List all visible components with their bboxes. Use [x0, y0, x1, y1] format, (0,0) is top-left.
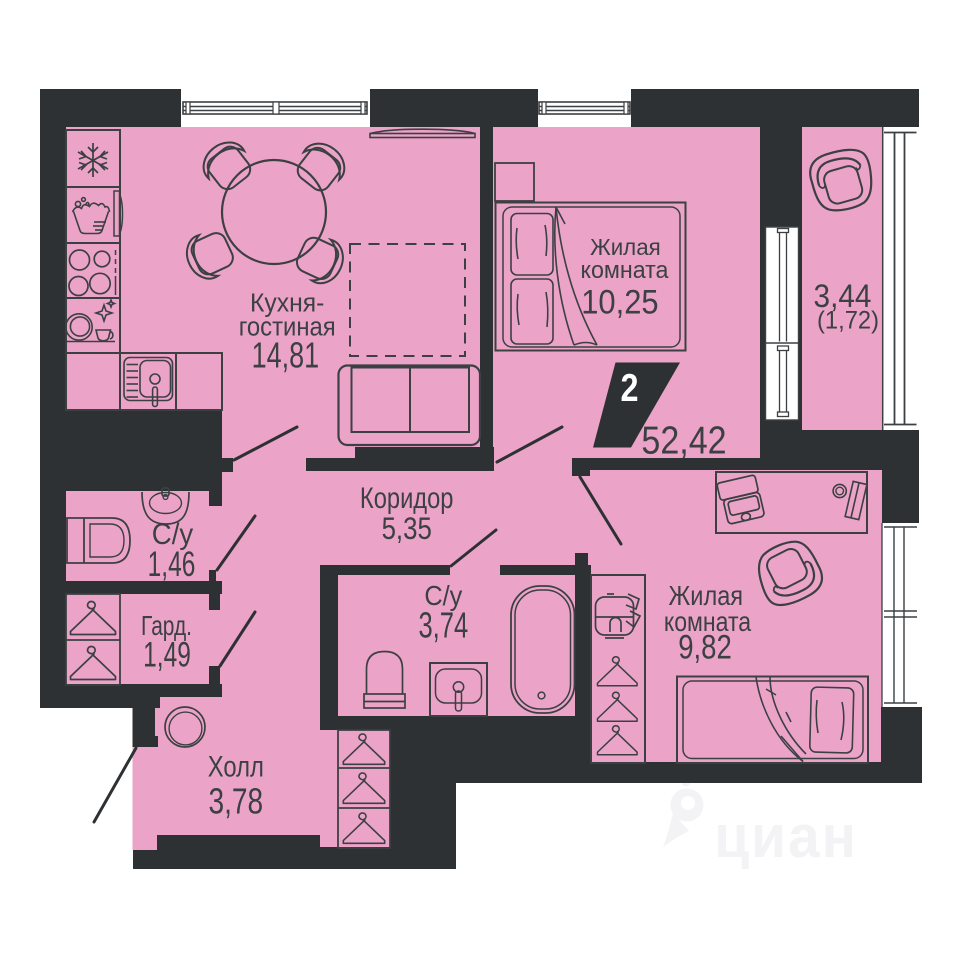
- svg-text:циан: циан: [714, 804, 858, 871]
- svg-text:(1,72): (1,72): [817, 307, 879, 335]
- svg-text:Холл: Холл: [208, 750, 264, 783]
- svg-text:3,78: 3,78: [208, 781, 263, 821]
- svg-text:1,46: 1,46: [148, 546, 196, 584]
- svg-text:комната: комната: [581, 258, 670, 284]
- svg-text:5,35: 5,35: [382, 512, 432, 547]
- svg-text:3,74: 3,74: [418, 604, 468, 646]
- svg-text:52,42: 52,42: [641, 419, 726, 462]
- svg-text:14,81: 14,81: [252, 335, 320, 376]
- svg-text:9,82: 9,82: [678, 628, 732, 666]
- svg-text:1,49: 1,49: [143, 636, 191, 674]
- svg-text:Жилая: Жилая: [590, 233, 661, 260]
- svg-text:2: 2: [621, 366, 639, 409]
- svg-text:10,25: 10,25: [581, 283, 658, 321]
- svg-text:Коридор: Коридор: [360, 481, 454, 514]
